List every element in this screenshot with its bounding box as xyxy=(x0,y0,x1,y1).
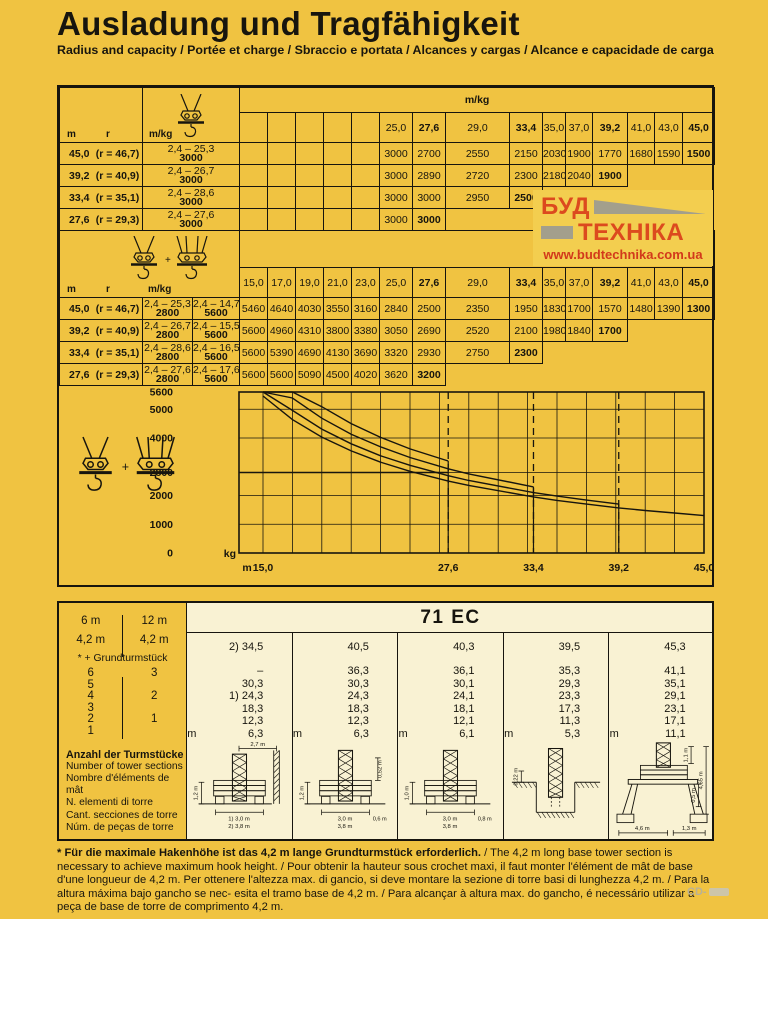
column-header: 15,0 xyxy=(240,268,268,298)
column-header: 23,0 xyxy=(352,268,380,298)
unit-label: m xyxy=(610,728,619,741)
range-cell: 2,4 – 27,63000 xyxy=(143,209,240,231)
empty-area xyxy=(446,364,510,386)
empty-area xyxy=(655,320,683,342)
max-hook-height: 2) 34,5 xyxy=(215,641,263,653)
capacity-cell: 2180 xyxy=(543,165,566,187)
column-header: 17,0 xyxy=(268,268,296,298)
table-row: 27,6(r = 29,3)2,4 – 27,628002,4 – 17,656… xyxy=(60,364,715,386)
capacity-cell: 2500 xyxy=(413,298,446,320)
svg-text:+: + xyxy=(165,255,171,266)
capacity-cell: 4030 xyxy=(296,298,324,320)
empty-area xyxy=(566,342,593,364)
capacity-cell: 3690 xyxy=(352,342,380,364)
capacity-cell: 3050 xyxy=(380,320,413,342)
capacity-cell: 4310 xyxy=(296,320,324,342)
capacity-cell xyxy=(324,143,352,165)
svg-text:2,7 m: 2,7 m xyxy=(251,742,266,748)
range-cell: 2,4 – 27,62800 xyxy=(143,364,193,386)
max-hook-height: 40,3 xyxy=(426,641,474,653)
tower-diagram: 1,2 m3,0 m3,8 m0,52 m0,6 m xyxy=(294,741,396,840)
empty-area xyxy=(683,342,715,364)
svg-text:m: m xyxy=(242,562,251,574)
tower-sections-sidebar: 6 m 12 m 4,2 m 4,2 m * + Grundturmstück … xyxy=(59,603,187,839)
capacity-cell xyxy=(352,209,380,231)
double-hook-icon: + xyxy=(126,236,212,282)
empty-area xyxy=(510,364,543,386)
hook-heights-list: –30,31) 24,318,312,3m6,3 xyxy=(215,665,263,741)
column-header: 35,0 xyxy=(543,268,566,298)
logo-row1: БУД xyxy=(541,196,705,220)
capacity-cell xyxy=(268,143,296,165)
range-cell: 2,4 – 28,62800 xyxy=(143,342,193,364)
svg-text:1000: 1000 xyxy=(150,519,174,531)
unit-strip: m/kg xyxy=(240,88,715,113)
column-header: 41,0 xyxy=(628,268,655,298)
corner-cell: mr xyxy=(60,88,143,143)
range-cell: 2,4 – 14,75600 xyxy=(193,298,240,320)
empty-area xyxy=(628,320,655,342)
svg-text:4000: 4000 xyxy=(150,433,174,445)
table-row: mr m/kg m/kg xyxy=(60,88,715,113)
capacity-tables-box: mr m/kg m/kg25,027,629,033,435,037,039,2… xyxy=(57,85,714,587)
double-hook-icon: + xyxy=(131,236,207,279)
range-cell: 2,4 – 15,55600 xyxy=(193,320,240,342)
capacity-cell: 2840 xyxy=(380,298,413,320)
table-row: 45,0(r = 46,7)2,4 – 25,328002,4 – 14,756… xyxy=(60,298,715,320)
capacity-cell: 2930 xyxy=(413,342,446,364)
max-hook-height: 39,5 xyxy=(532,641,580,653)
svg-text:0,6 m: 0,6 m xyxy=(373,816,387,822)
range-cell: 2,4 – 25,33000 xyxy=(143,143,240,165)
capacity-cell: 3000 xyxy=(380,187,413,209)
capacity-cell: 1570 xyxy=(593,298,628,320)
column-header: 41,0 xyxy=(628,113,655,143)
radius-label: 33,4(r = 35,1) xyxy=(60,342,143,364)
svg-text:1,1 m: 1,1 m xyxy=(683,747,689,762)
table-row: 33,4(r = 35,1)2,4 – 28,628002,4 – 16,556… xyxy=(60,342,715,364)
empty-area xyxy=(628,342,655,364)
capacity-cell: 1840 xyxy=(566,320,593,342)
capacity-cell: 3000 xyxy=(380,165,413,187)
svg-text:3,0 m: 3,0 m xyxy=(443,816,458,822)
capacity-cell: 1480 xyxy=(628,298,655,320)
footnote-bold: * Für die maximale Hakenhöhe ist das 4,2… xyxy=(57,847,481,859)
radius-label: 27,6(r = 29,3) xyxy=(60,209,143,231)
logo-row2: ТЕХНІКА xyxy=(541,220,705,244)
radius-label: 39,2(r = 40,9) xyxy=(60,165,143,187)
empty-area xyxy=(683,320,715,342)
table-row: 39,2(r = 40,9)2,4 – 26,73000300028902720… xyxy=(60,165,715,187)
hook-heights-list: 41,135,129,123,117,1m11,1 xyxy=(638,665,686,741)
column-header: 35,0 xyxy=(543,113,566,143)
svg-text:0,8 m: 0,8 m xyxy=(478,816,492,822)
capacity-cell xyxy=(268,165,296,187)
capacity-cell xyxy=(240,209,268,231)
empty-area xyxy=(683,364,715,386)
capacity-cell: 2750 xyxy=(446,342,510,364)
svg-text:2000: 2000 xyxy=(150,490,174,502)
sidebar-caption: Anzahl der Turmstücke Number of tower se… xyxy=(59,749,186,834)
capacity-cell: 1300 xyxy=(683,298,715,320)
hook-cell: m/kg xyxy=(143,88,240,143)
column-header: 33,4 xyxy=(510,268,543,298)
empty-area xyxy=(628,364,655,386)
empty-area xyxy=(593,364,628,386)
capacity-cell xyxy=(240,187,268,209)
capacity-cell: 1900 xyxy=(593,165,628,187)
capacity-cell: 2040 xyxy=(566,165,593,187)
svg-text:39,2: 39,2 xyxy=(609,562,630,574)
capacity-cell: 3800 xyxy=(324,320,352,342)
range-cell: 2,4 – 16,55600 xyxy=(193,342,240,364)
svg-text:5600: 5600 xyxy=(150,387,174,399)
max-hook-height: 45,3 xyxy=(638,641,686,653)
svg-text:4,65 m: 4,65 m xyxy=(698,771,704,789)
capacity-cell: 1980 xyxy=(543,320,566,342)
svg-text:0,22 m: 0,22 m xyxy=(514,767,520,785)
unit-label: m xyxy=(293,728,302,741)
capacity-cell: 5600 xyxy=(268,364,296,386)
column-header: 43,0 xyxy=(655,268,683,298)
budtechnika-logo: БУД ТЕХНІКА www.budtechnika.com.ua xyxy=(533,190,713,266)
hook-heights-list: 36,130,124,118,112,1m6,1 xyxy=(426,665,474,741)
sidebar-divider xyxy=(122,677,123,739)
capacity-cell: 3620 xyxy=(380,364,413,386)
svg-text:1,2 m: 1,2 m xyxy=(194,785,200,800)
capacity-cell: 3380 xyxy=(352,320,380,342)
logo-square-icon xyxy=(541,226,573,239)
radius-label: 45,0(r = 46,7) xyxy=(60,298,143,320)
empty-area xyxy=(655,342,683,364)
range-cell: 2,4 – 26,72800 xyxy=(143,320,193,342)
column-header: 45,0 xyxy=(683,113,715,143)
capacity-cell: 2720 xyxy=(446,165,510,187)
capacity-cell: 1680 xyxy=(628,143,655,165)
config-column: 2) 34,5 –30,31) 24,318,312,3m6,3 1,2 m1)… xyxy=(187,633,292,841)
empty-area xyxy=(543,342,566,364)
capacity-cell xyxy=(240,165,268,187)
column-header: 39,2 xyxy=(593,268,628,298)
capacity-cell: 3000 xyxy=(380,209,413,231)
column-header xyxy=(268,113,296,143)
capacity-cell xyxy=(352,187,380,209)
capacity-cell: 5090 xyxy=(296,364,324,386)
capacity-cell: 2690 xyxy=(413,320,446,342)
empty-area xyxy=(566,364,593,386)
tower-diagram: 0,22 m xyxy=(505,741,607,840)
capacity-cell: 4020 xyxy=(352,364,380,386)
svg-text:+: + xyxy=(122,460,129,474)
print-mark: CD- xyxy=(687,886,729,898)
capacity-cell: 4690 xyxy=(296,342,324,364)
column-header: 37,0 xyxy=(566,113,593,143)
svg-text:5000: 5000 xyxy=(150,404,174,416)
column-header: 25,0 xyxy=(380,268,413,298)
logo-text-bud: БУД xyxy=(541,196,590,217)
capacity-cell: 4500 xyxy=(324,364,352,386)
empty-area xyxy=(593,342,628,364)
caption-line: Núm. de peças de torre xyxy=(66,822,186,834)
double-hook-icon: + xyxy=(79,437,174,490)
range-cell: 2,4 – 26,73000 xyxy=(143,165,240,187)
column-header: 45,0 xyxy=(683,268,715,298)
caption-title: Anzahl der Turmstücke xyxy=(66,749,186,761)
capacity-cell xyxy=(268,209,296,231)
capacity-cell: 1700 xyxy=(593,320,628,342)
range-cell: 2,4 – 28,63000 xyxy=(143,187,240,209)
empty-area xyxy=(628,165,655,187)
column-header xyxy=(324,113,352,143)
capacity-cell: 1900 xyxy=(566,143,593,165)
capacity-cell: 2950 xyxy=(446,187,510,209)
column-header: 39,2 xyxy=(593,113,628,143)
max-hook-height: 40,5 xyxy=(321,641,369,653)
column-header: 25,0 xyxy=(380,113,413,143)
capacity-cell: 4960 xyxy=(268,320,296,342)
capacity-cell xyxy=(324,187,352,209)
svg-text:1) 3,0 m: 1) 3,0 m xyxy=(228,816,250,822)
svg-text:15,0: 15,0 xyxy=(253,562,274,574)
radius-label: 45,0(r = 46,7) xyxy=(60,143,143,165)
empty-area xyxy=(683,165,715,187)
capacity-cell: 2520 xyxy=(446,320,510,342)
unit-label: m xyxy=(398,728,407,741)
config-column: 39,5 35,329,323,317,311,3m5,3 0,22 m xyxy=(503,633,609,841)
radius-label: 39,2(r = 40,9) xyxy=(60,320,143,342)
column-header: 27,6 xyxy=(413,268,446,298)
capacity-cell: 1770 xyxy=(593,143,628,165)
capacity-cell: 2150 xyxy=(510,143,543,165)
svg-text:3,8 m: 3,8 m xyxy=(443,824,458,830)
capacity-cell: 2300 xyxy=(510,165,543,187)
corner-cell: + mrm/kg xyxy=(60,231,240,298)
capacity-cell: 5390 xyxy=(268,342,296,364)
empty-area xyxy=(655,165,683,187)
svg-text:2) 3,8 m: 2) 3,8 m xyxy=(228,824,250,830)
tower-config-box: 6 m 12 m 4,2 m 4,2 m * + Grundturmstück … xyxy=(57,601,714,841)
capacity-cell: 3550 xyxy=(324,298,352,320)
tower-diagram: 1,0 m3,0 m3,8 m0,8 m xyxy=(399,741,501,840)
capacity-cell xyxy=(352,143,380,165)
logo-wedge-icon xyxy=(594,199,705,215)
hook-heights-list: 35,329,323,317,311,3m5,3 xyxy=(532,665,580,741)
unit-label: m xyxy=(504,728,513,741)
svg-text:33,4: 33,4 xyxy=(523,562,544,574)
capacity-cell xyxy=(324,165,352,187)
svg-text:1,3 m: 1,3 m xyxy=(682,826,697,832)
capacity-cell: 4640 xyxy=(268,298,296,320)
capacity-cell: 1950 xyxy=(510,298,543,320)
model-title: 71 EC xyxy=(187,603,714,633)
column-header: 21,0 xyxy=(324,268,352,298)
capacity-cell: 2030 xyxy=(543,143,566,165)
capacity-cell: 3000 xyxy=(380,143,413,165)
capacity-cell: 2890 xyxy=(413,165,446,187)
sidebar-divider xyxy=(122,615,123,657)
empty-area xyxy=(446,209,510,231)
column-header: 43,0 xyxy=(655,113,683,143)
capacity-cell: 3000 xyxy=(413,209,446,231)
capacity-cell: 5460 xyxy=(240,298,268,320)
caption-line: Nombre d'éléments de mât xyxy=(66,773,186,797)
svg-text:3,0 m: 3,0 m xyxy=(338,816,353,822)
svg-text:0: 0 xyxy=(167,548,173,560)
column-header: 29,0 xyxy=(446,113,510,143)
svg-text:3,8 m: 3,8 m xyxy=(338,824,353,830)
config-column: 40,5 36,330,324,318,312,3m6,3 1,2 m3,0 m… xyxy=(292,633,398,841)
capacity-cell xyxy=(296,143,324,165)
capacity-cell: 1700 xyxy=(566,298,593,320)
capacity-cell: 2300 xyxy=(510,342,543,364)
config-column: 40,3 36,130,124,118,112,1m6,1 1,0 m3,0 m… xyxy=(397,633,503,841)
tower-diagram: 1,2 m1) 3,0 m2) 3,8 m2,7 m xyxy=(188,741,290,840)
column-header xyxy=(352,113,380,143)
svg-text:1,2 m: 1,2 m xyxy=(300,785,306,800)
capacity-cell: 3160 xyxy=(352,298,380,320)
print-mark-icon xyxy=(709,888,729,896)
hook-heights-list: 36,330,324,318,312,3m6,3 xyxy=(321,665,369,741)
config-column: 45,3 41,135,129,123,117,1m11,1 1,1 m0,5 … xyxy=(608,633,714,841)
caption-line: Cant. secciones de torre xyxy=(66,810,186,822)
svg-text:0,52 m: 0,52 m xyxy=(377,760,383,778)
column-header: 37,0 xyxy=(566,268,593,298)
svg-text:1,0 m: 1,0 m xyxy=(405,785,411,800)
page-subtitle: Radius and capacity / Portée et charge /… xyxy=(57,43,717,57)
tower-diagram: 1,1 m0,5 m4,65 m4,6 m1,3 m xyxy=(611,741,713,840)
logo-url: www.budtechnika.com.ua xyxy=(541,247,705,262)
capacity-cell: 1500 xyxy=(683,143,715,165)
logo-text-tehnika: ТЕХНІКА xyxy=(578,222,684,243)
table-row: 45,0(r = 46,7)2,4 – 25,33000300027002550… xyxy=(60,143,715,165)
capacity-cell xyxy=(268,187,296,209)
page-title: Ausladung und Tragfähigkeit xyxy=(57,7,717,42)
svg-text:45,0: 45,0 xyxy=(694,562,712,574)
single-hook-icon xyxy=(173,94,209,140)
capacity-cell: 2700 xyxy=(413,143,446,165)
capacity-cell: 5600 xyxy=(240,342,268,364)
svg-text:4,6 m: 4,6 m xyxy=(635,826,650,832)
column-header xyxy=(296,113,324,143)
capacity-cell xyxy=(296,165,324,187)
caption-lines: Number of tower sectionsNombre d'élément… xyxy=(66,761,186,834)
load-radius-chart: 0100020002800400050005600kgm15,027,633,4… xyxy=(59,385,712,585)
empty-area xyxy=(543,364,566,386)
capacity-cell: 2550 xyxy=(446,143,510,165)
column-header: 19,0 xyxy=(296,268,324,298)
header: Ausladung und Tragfähigkeit Radius and c… xyxy=(57,7,717,57)
svg-text:0,5 m: 0,5 m xyxy=(691,788,697,803)
column-header: 29,0 xyxy=(446,268,510,298)
empty-area xyxy=(655,364,683,386)
capacity-cell: 1830 xyxy=(543,298,566,320)
caption-line: N. elementi di torre xyxy=(66,797,186,809)
radius-label: 33,4(r = 35,1) xyxy=(60,187,143,209)
range-cell: 2,4 – 25,32800 xyxy=(143,298,193,320)
svg-text:kg: kg xyxy=(224,548,236,560)
column-header: 33,4 xyxy=(510,113,543,143)
capacity-cell: 5600 xyxy=(240,364,268,386)
svg-text:27,6: 27,6 xyxy=(438,562,459,574)
unit-label: m xyxy=(187,728,196,741)
capacity-cell xyxy=(240,143,268,165)
capacity-cell: 2100 xyxy=(510,320,543,342)
capacity-cell xyxy=(324,209,352,231)
caption-line: Number of tower sections xyxy=(66,761,186,773)
capacity-cell: 4130 xyxy=(324,342,352,364)
capacity-cell xyxy=(296,209,324,231)
capacity-cell xyxy=(296,187,324,209)
print-mark-text: CD- xyxy=(687,886,707,898)
capacity-cell: 2350 xyxy=(446,298,510,320)
range-cell: 2,4 – 17,65600 xyxy=(193,364,240,386)
column-header xyxy=(240,113,268,143)
capacity-cell: 5600 xyxy=(240,320,268,342)
capacity-cell: 3320 xyxy=(380,342,413,364)
capacity-cell: 3000 xyxy=(413,187,446,209)
capacity-cell xyxy=(352,165,380,187)
footnote: * Für die maximale Hakenhöhe ist das 4,2… xyxy=(57,847,714,915)
radius-label: 27,6(r = 29,3) xyxy=(60,364,143,386)
column-header: 27,6 xyxy=(413,113,446,143)
capacity-cell: 1590 xyxy=(655,143,683,165)
capacity-cell: 3200 xyxy=(413,364,446,386)
capacity-cell: 1390 xyxy=(655,298,683,320)
config-columns: 2) 34,5 –30,31) 24,318,312,3m6,3 1,2 m1)… xyxy=(187,633,714,841)
table-row: 39,2(r = 40,9)2,4 – 26,728002,4 – 15,556… xyxy=(60,320,715,342)
page: Ausladung und Tragfähigkeit Radius and c… xyxy=(0,0,768,1024)
